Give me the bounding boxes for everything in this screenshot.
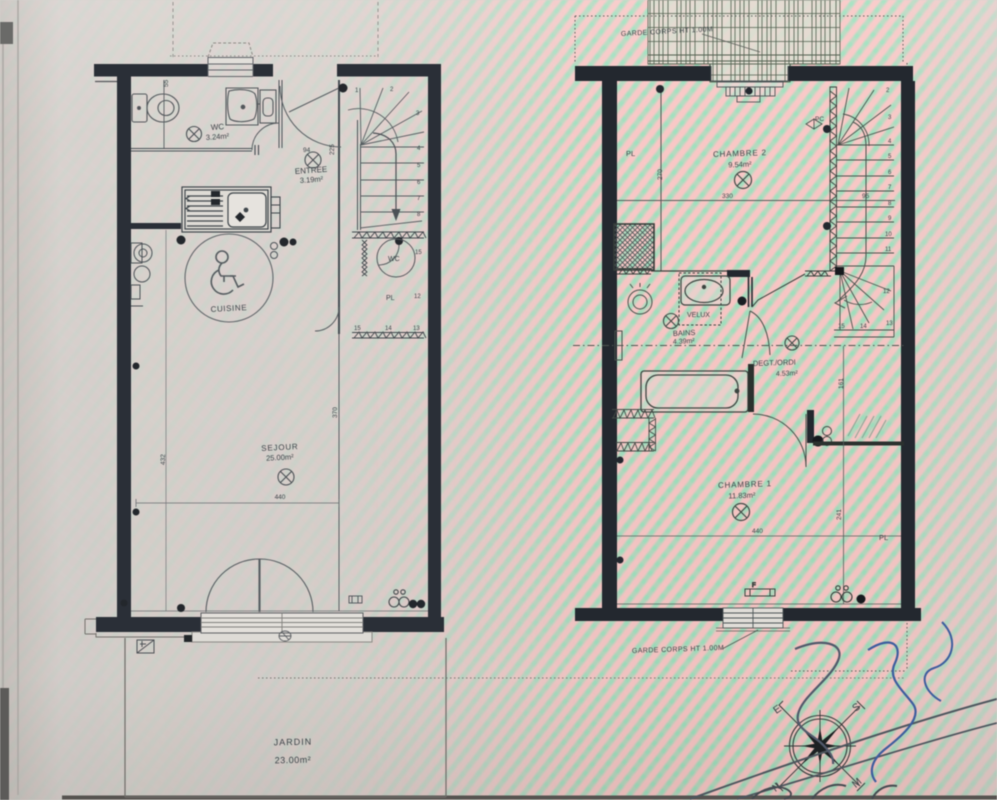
svg-text:12: 12	[883, 289, 890, 295]
svg-text:3.24m²: 3.24m²	[206, 131, 230, 142]
svg-text:CUISINE: CUISINE	[210, 303, 247, 314]
svg-text:23.00m²: 23.00m²	[275, 755, 312, 766]
svg-text:PL: PL	[386, 295, 395, 302]
svg-text:3.19m²: 3.19m²	[300, 174, 324, 185]
svg-text:5: 5	[417, 163, 421, 169]
svg-text:CHAMBRE 2: CHAMBRE 2	[713, 148, 767, 159]
svg-text:3: 3	[888, 115, 892, 121]
svg-text:CHAMBRE 1: CHAMBRE 1	[718, 479, 772, 490]
svg-text:11: 11	[885, 247, 892, 253]
svg-text:241: 241	[836, 509, 843, 520]
svg-text:JARDIN: JARDIN	[274, 737, 313, 748]
svg-text:440: 440	[752, 528, 763, 535]
svg-text:4: 4	[888, 139, 892, 145]
svg-text:14: 14	[385, 326, 392, 332]
svg-text:BAINS: BAINS	[673, 328, 696, 338]
svg-text:55: 55	[163, 79, 170, 87]
svg-text:6: 6	[888, 170, 892, 176]
svg-text:15: 15	[354, 326, 361, 332]
svg-text:440: 440	[275, 494, 286, 501]
svg-text:1: 1	[355, 88, 359, 94]
svg-text:5: 5	[888, 154, 892, 160]
svg-text:PL: PL	[879, 533, 888, 542]
svg-text:7: 7	[417, 196, 421, 202]
svg-text:GARDE CORPS HT 1.00M: GARDE CORPS HT 1.00M	[632, 645, 724, 655]
svg-text:3: 3	[416, 111, 420, 117]
svg-text:14: 14	[860, 324, 867, 330]
svg-text:8: 8	[888, 201, 892, 207]
svg-text:PL: PL	[626, 149, 635, 158]
svg-text:F: F	[752, 583, 756, 589]
svg-text:12: 12	[414, 294, 421, 300]
svg-text:9.54m²: 9.54m²	[728, 160, 752, 170]
svg-text:9: 9	[888, 216, 892, 222]
svg-text:7: 7	[888, 185, 892, 191]
svg-text:94: 94	[303, 147, 311, 154]
svg-text:15: 15	[838, 324, 845, 330]
svg-text:10: 10	[885, 232, 892, 238]
svg-text:270: 270	[657, 169, 664, 180]
svg-text:225: 225	[329, 144, 336, 155]
svg-text:4.53m²: 4.53m²	[776, 370, 799, 378]
svg-text:WC: WC	[211, 122, 225, 132]
svg-text:PC: PC	[815, 116, 824, 123]
svg-text:VELUX: VELUX	[687, 312, 710, 319]
svg-text:WC: WC	[388, 256, 400, 263]
svg-text:13: 13	[413, 326, 420, 332]
svg-text:330: 330	[722, 193, 733, 200]
svg-text:E: E	[771, 703, 784, 717]
svg-text:4.39m²: 4.39m²	[673, 338, 696, 346]
svg-text:2: 2	[886, 88, 890, 94]
svg-text:11.83m²: 11.83m²	[728, 491, 756, 501]
svg-text:8: 8	[417, 212, 421, 218]
svg-text:2: 2	[390, 87, 394, 93]
svg-text:370: 370	[332, 407, 339, 418]
svg-text:161: 161	[838, 378, 845, 389]
svg-text:15: 15	[415, 250, 422, 256]
svg-text:DEGT./ORDI: DEGT./ORDI	[753, 358, 796, 368]
svg-text:6: 6	[417, 180, 421, 186]
svg-text:13: 13	[886, 321, 893, 327]
svg-text:S: S	[850, 701, 863, 715]
svg-text:25.00m²: 25.00m²	[266, 452, 294, 462]
